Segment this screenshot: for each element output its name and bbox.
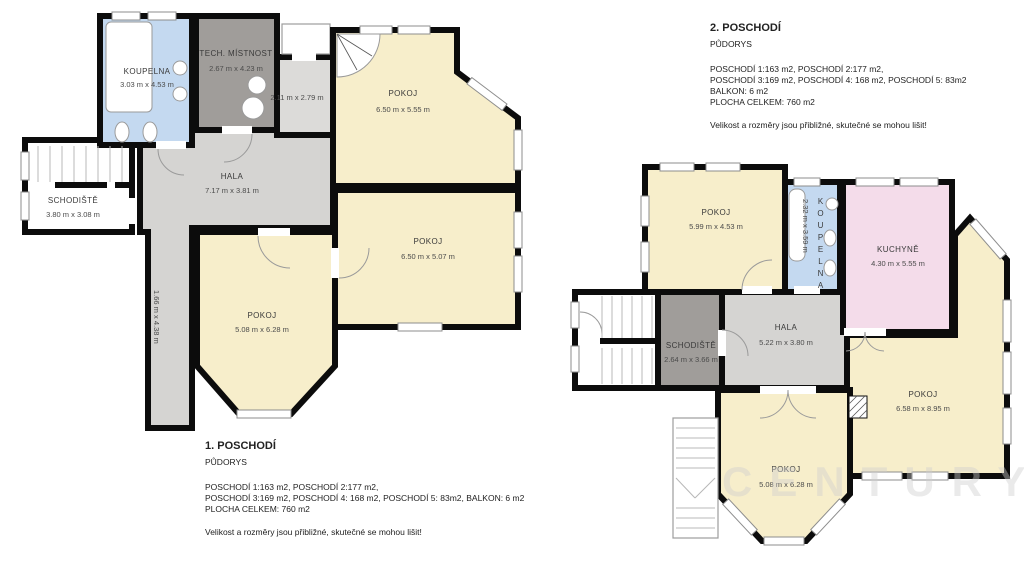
room-label: KOUPELNA	[124, 67, 171, 76]
floorplan-canvas: KOUPELNA 3.03 m x 4.53 m TECH. MÍSTNOST …	[0, 0, 1024, 576]
floor2-areas-line: POSCHODÍ 3:169 m2, POSCHODÍ 4: 168 m2, P…	[710, 75, 1020, 86]
floor1-disclaimer: Velikost a rozměry jsou přibližné, skute…	[205, 527, 535, 537]
century21-watermark: CENTURY 21	[722, 458, 1024, 506]
floor1-info: 1. POSCHODÍ PŮDORYS POSCHODÍ 1:163 m2, P…	[205, 440, 535, 537]
room-dims: 3.03 m x 4.53 m	[120, 80, 174, 89]
floor1-subtitle: PŮDORYS	[205, 457, 535, 467]
floor1-areas-line: POSCHODÍ 1:163 m2, POSCHODÍ 2:177 m2,	[205, 482, 535, 493]
room-dims: 6.50 m x 5.55 m	[376, 105, 430, 114]
room-tech-f1	[196, 16, 277, 130]
room-label: HALA	[221, 172, 244, 181]
room-kuchyne-f2	[843, 182, 952, 332]
room-dims: 2.11 m x 2.79 m	[270, 93, 323, 102]
room-dims: 5.22 m x 3.80 m	[759, 338, 813, 347]
room-schodiste-f2	[658, 292, 722, 388]
floor2-areas-line: BALKON: 6 m2	[710, 86, 1020, 97]
room-label: SCHODIŠTĚ	[666, 341, 716, 350]
room-label: TECH. MÍSTNOST	[199, 49, 272, 58]
floor1-areas-line: PLOCHA CELKEM: 760 m2	[205, 504, 535, 515]
balcony-f1	[282, 24, 330, 54]
floor1-areas-line: POSCHODÍ 3:169 m2, POSCHODÍ 4: 168 m2, P…	[205, 493, 535, 504]
room-label: HALA	[775, 323, 798, 332]
room-dims: 4.30 m x 5.55 m	[871, 259, 925, 268]
room-pokoj-bay-f1	[197, 232, 335, 414]
room-dims: 6.50 m x 5.07 m	[401, 252, 455, 261]
room-dims: 5.99 m x 4.53 m	[689, 222, 743, 231]
room-label: POKOJ	[247, 311, 276, 320]
external-stairs-f2	[673, 418, 718, 538]
floor2-subtitle: PŮDORYS	[710, 39, 1020, 49]
floor2-areas-line: PLOCHA CELKEM: 760 m2	[710, 97, 1020, 108]
room-label: POKOJ	[701, 208, 730, 217]
room-dims: 3.80 m x 3.08 m	[46, 210, 100, 219]
corridor-dims-f1: 1.66 m x 4.38 m	[152, 290, 161, 344]
room-label: POKOJ	[413, 237, 442, 246]
floor1-title: 1. POSCHODÍ	[205, 440, 535, 452]
floor2-areas-line: POSCHODÍ 1:163 m2, POSCHODÍ 2:177 m2,	[710, 64, 1020, 75]
floor2-title: 2. POSCHODÍ	[710, 22, 1020, 34]
floor1-plan: KOUPELNA 3.03 m x 4.53 m TECH. MÍSTNOST …	[21, 12, 522, 428]
room-label: SCHODIŠTĚ	[48, 196, 98, 205]
room-dims: 5.08 m x 6.28 m	[235, 325, 289, 334]
room-label: POKOJ	[908, 390, 937, 399]
room-dims: 2.64 m x 3.66 m	[664, 355, 718, 364]
koupelna-label-f2: KOUPELNA	[816, 197, 825, 293]
room-label: KUCHYNĚ	[877, 245, 919, 254]
chimney-hatch-f2	[849, 396, 867, 418]
room-dims: 6.58 m x 8.95 m	[896, 404, 950, 413]
koupelna-dims-f2: 2.32 m x 3.59 m	[801, 199, 810, 253]
room-label: POKOJ	[388, 89, 417, 98]
room-dims: 2.67 m x 4.23 m	[209, 64, 263, 73]
floor2-disclaimer: Velikost a rozměry jsou přibližné, skute…	[710, 120, 1020, 130]
room-dims: 7.17 m x 3.81 m	[205, 186, 259, 195]
floor2-info: 2. POSCHODÍ PŮDORYS POSCHODÍ 1:163 m2, P…	[710, 22, 1020, 130]
